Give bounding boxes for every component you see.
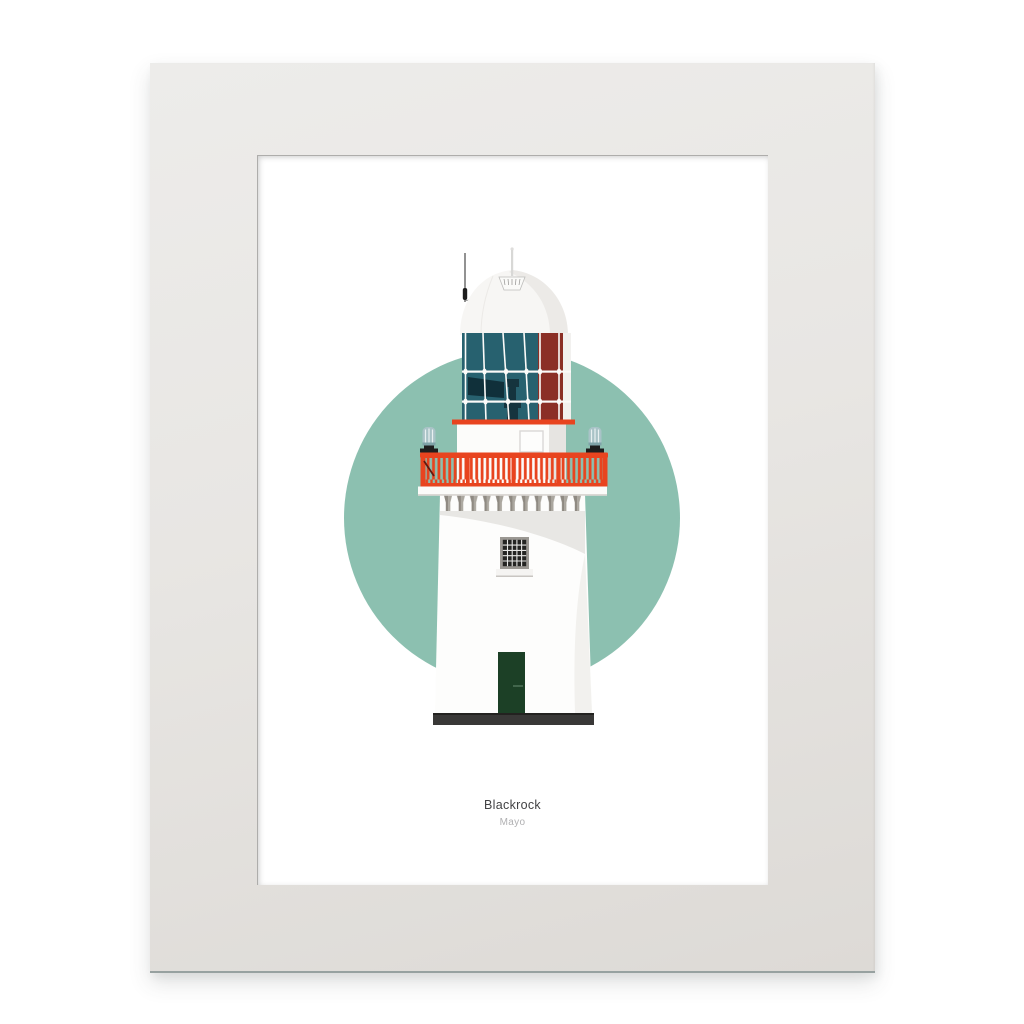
dome-finial bbox=[499, 247, 525, 290]
gallery-floor bbox=[452, 420, 575, 425]
framed-print-photo: { "artwork": { "title": "Blackrock", "co… bbox=[0, 0, 1024, 1024]
gallery-deck bbox=[418, 487, 607, 496]
beacon-right bbox=[586, 427, 604, 453]
tower-door bbox=[498, 652, 525, 713]
lantern-glazing bbox=[462, 333, 571, 421]
tower-window bbox=[496, 537, 533, 577]
gallery-corbels bbox=[444, 496, 583, 512]
lighthouse-illustration bbox=[257, 155, 768, 885]
tower-base bbox=[433, 713, 594, 725]
picture-frame: Blackrock Mayo bbox=[150, 63, 875, 973]
picture-mat-opening: Blackrock Mayo bbox=[257, 155, 768, 885]
gallery-railing bbox=[420, 453, 608, 487]
lantern-dome bbox=[460, 247, 568, 335]
beacon-left bbox=[420, 427, 438, 453]
